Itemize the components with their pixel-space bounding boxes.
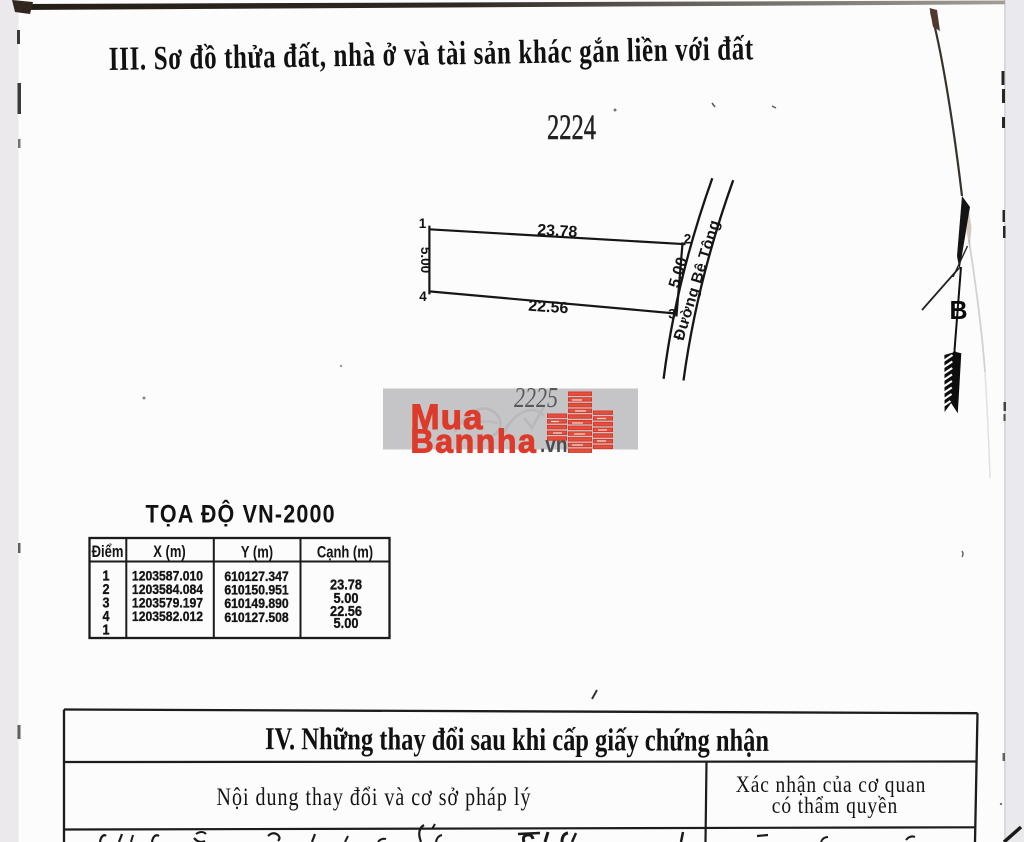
svg-text:4: 4: [419, 289, 427, 304]
svg-text:23.78: 23.78: [537, 222, 578, 241]
svg-text:có thẩm quyền: có thẩm quyền: [772, 792, 898, 818]
svg-text:X (m): X (m): [153, 544, 186, 562]
svg-text:TỌA ĐỘ VN-2000: TỌA ĐỘ VN-2000: [146, 499, 336, 528]
svg-text:610127.508: 610127.508: [224, 609, 288, 625]
svg-text:2225: 2225: [514, 381, 558, 414]
svg-text:5.00: 5.00: [334, 615, 359, 631]
svg-text:B: B: [949, 296, 967, 325]
svg-text:Cạnh (m): Cạnh (m): [317, 544, 373, 562]
svg-text:1: 1: [102, 622, 109, 638]
svg-text:Nội dung thay đổi và cơ sở phá: Nội dung thay đổi và cơ sở pháp lý: [217, 783, 532, 811]
svg-text:2224: 2224: [547, 108, 596, 148]
svg-text:1: 1: [419, 216, 427, 231]
svg-text:IV. Những thay đổi sau khi cấp: IV. Những thay đổi sau khi cấp giấy chứn…: [265, 722, 769, 759]
svg-text:Y (m): Y (m): [241, 544, 273, 562]
svg-text:Bannha: Bannha: [411, 423, 538, 460]
svg-text:22.56: 22.56: [528, 298, 569, 318]
svg-text:1203582.012: 1203582.012: [132, 608, 203, 624]
svg-text:5.00: 5.00: [418, 247, 433, 273]
svg-text:Điểm: Điểm: [92, 544, 124, 562]
